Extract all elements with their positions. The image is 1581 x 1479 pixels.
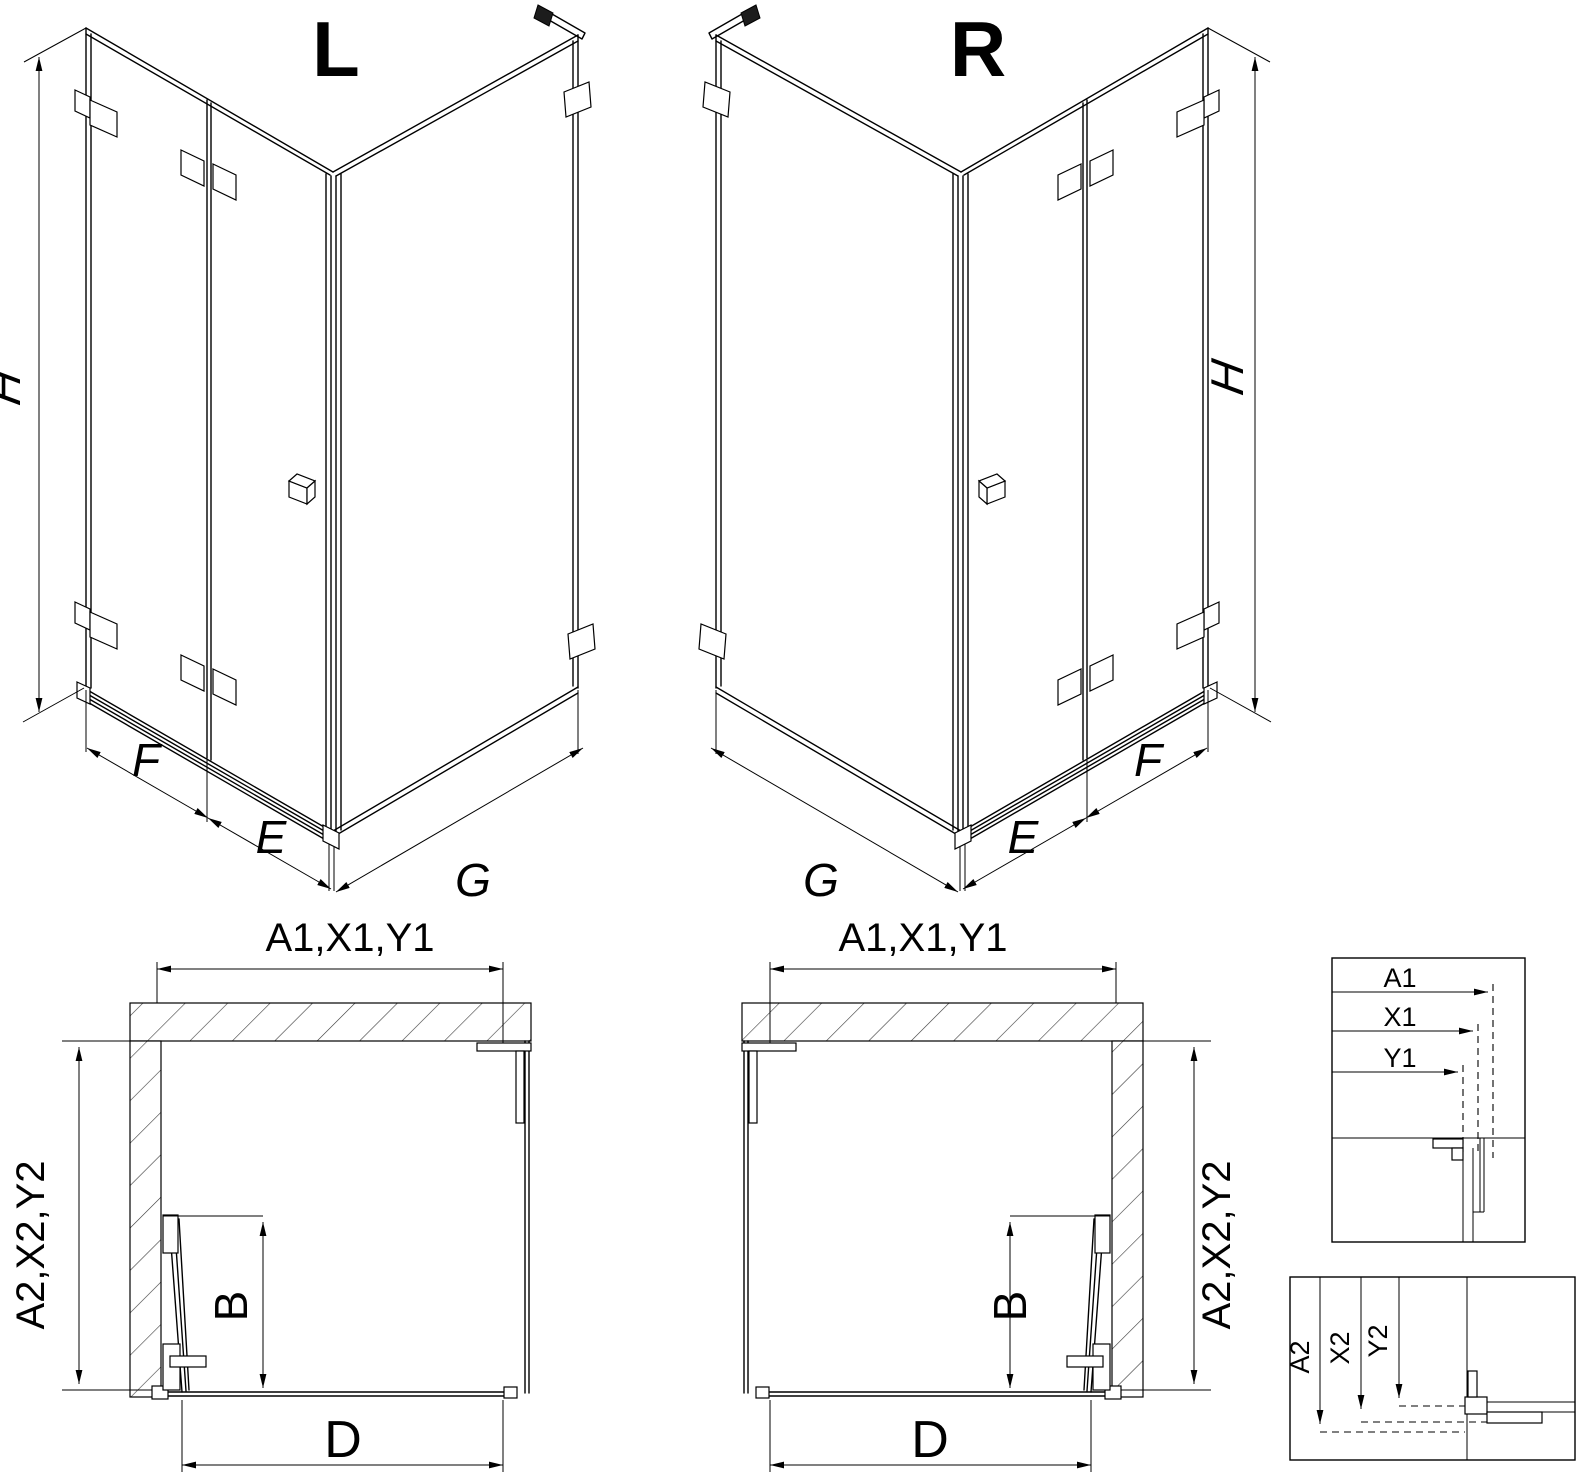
dim-label-inner-left: E [256,811,288,863]
detail-box-top: A1 X1 Y1 [1332,958,1525,1242]
plan-left-top-label: A1,X1,Y1 [265,916,434,960]
dim-label-front-left: F [132,734,163,786]
dim-label-height-left: H [0,366,30,409]
plan-right-side-label: A2,X2,Y2 [1195,1160,1239,1329]
iso-view-right: R H F E G [699,5,1271,906]
detail-bottom-row1-label: A2 [1285,1340,1315,1373]
plan-right-door-label: B [984,1291,1036,1322]
detail-top-row2-label: X1 [1383,1002,1416,1032]
detail-top-row1-label: A1 [1383,963,1416,993]
dim-label-inner-right: E [1008,811,1040,863]
plan-left-door-label: B [205,1291,257,1322]
wall-top-right-plan [742,1003,1143,1041]
detail-top-row3-label: Y1 [1383,1043,1416,1073]
view-label-left: L [312,5,360,93]
dim-label-side-left: G [455,854,491,906]
dim-label-side-right: G [803,854,839,906]
plan-view-left: A1,X1,Y1 A2,X2,Y2 B D [9,916,531,1472]
plan-left-entry-label: D [324,1411,362,1469]
view-label-right: R [950,5,1006,93]
dim-label-front-right: F [1134,734,1165,786]
plan-left-side-label: A2,X2,Y2 [9,1160,53,1329]
technical-drawing-page: L H F E G R H F E G A1,X1,Y1 A2,X2,Y2 B … [0,0,1581,1479]
dim-label-height-right: H [1201,356,1253,399]
wall-side-right-plan [1112,1041,1143,1397]
shower-enclosure-drawing: L H F E G R H F E G A1,X1,Y1 A2,X2,Y2 B … [0,0,1581,1479]
detail-bottom-row3-label: Y2 [1363,1324,1393,1357]
iso-view-left: L H F E G [0,5,595,906]
wall-side-left-plan [130,1041,161,1397]
detail-bottom-row2-label: X2 [1325,1331,1355,1364]
wall-top-left-plan [130,1003,531,1041]
plan-view-right: A1,X1,Y1 A2,X2,Y2 B D [742,916,1239,1472]
detail-box-bottom: A2 X2 Y2 [1285,1277,1575,1460]
plan-right-entry-label: D [911,1411,949,1469]
plan-right-top-label: A1,X1,Y1 [838,916,1007,960]
